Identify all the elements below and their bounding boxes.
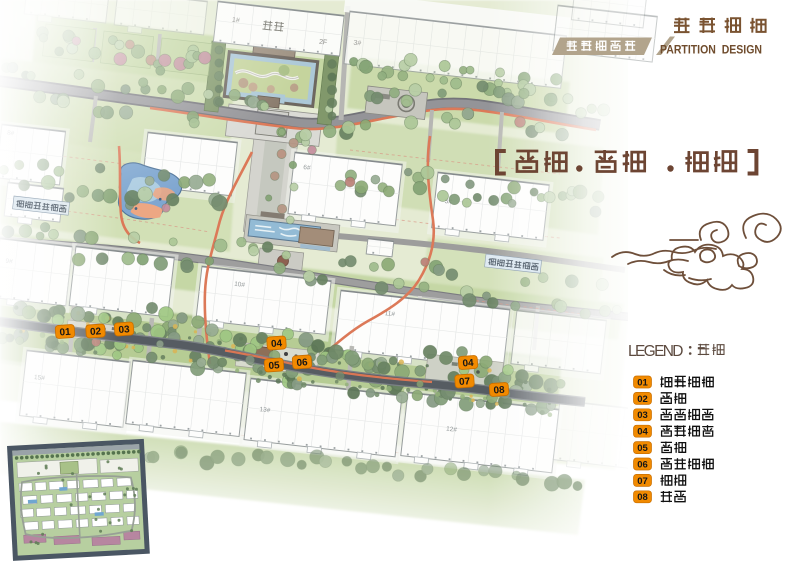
svg-text:02: 02 xyxy=(637,394,648,405)
svg-text:07: 07 xyxy=(459,376,471,388)
svg-text:PARTITION DESIGN: PARTITION DESIGN xyxy=(660,43,762,57)
svg-text:01: 01 xyxy=(59,327,71,339)
svg-text:07: 07 xyxy=(637,476,648,487)
svg-text:06: 06 xyxy=(637,459,648,470)
svg-text:03: 03 xyxy=(637,410,648,421)
svg-text:03: 03 xyxy=(118,324,130,336)
svg-text:LEGEND: LEGEND xyxy=(628,343,684,360)
svg-text:05: 05 xyxy=(637,443,648,454)
svg-text:01: 01 xyxy=(637,377,648,388)
svg-text:04: 04 xyxy=(637,427,648,438)
svg-text:08: 08 xyxy=(637,492,648,503)
svg-text:05: 05 xyxy=(268,360,280,372)
svg-text:04: 04 xyxy=(462,358,474,370)
svg-text:02: 02 xyxy=(90,326,102,338)
svg-text:06: 06 xyxy=(296,357,308,369)
svg-text:04: 04 xyxy=(271,338,283,350)
svg-text:08: 08 xyxy=(493,385,505,397)
